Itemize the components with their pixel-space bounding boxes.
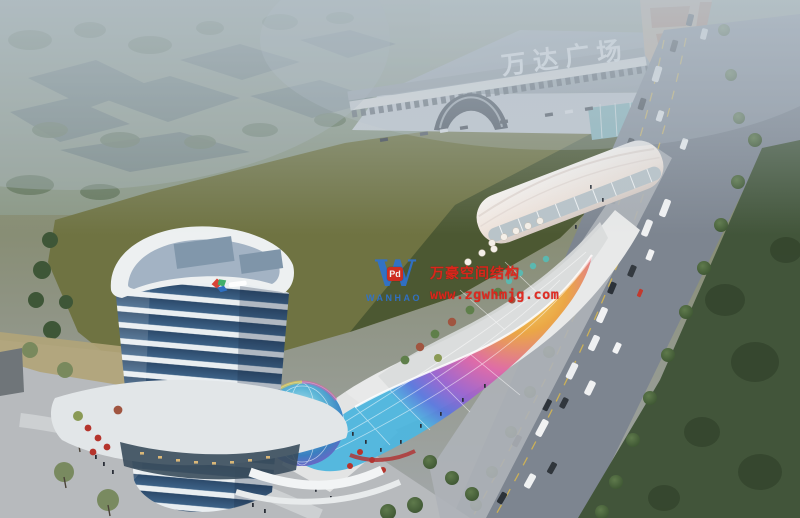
rendering-scene: 万达广场 bbox=[0, 0, 800, 518]
haze-overlay bbox=[0, 0, 800, 235]
grey-shed bbox=[0, 348, 24, 396]
architectural-rendering: 万达广场 bbox=[0, 0, 800, 518]
